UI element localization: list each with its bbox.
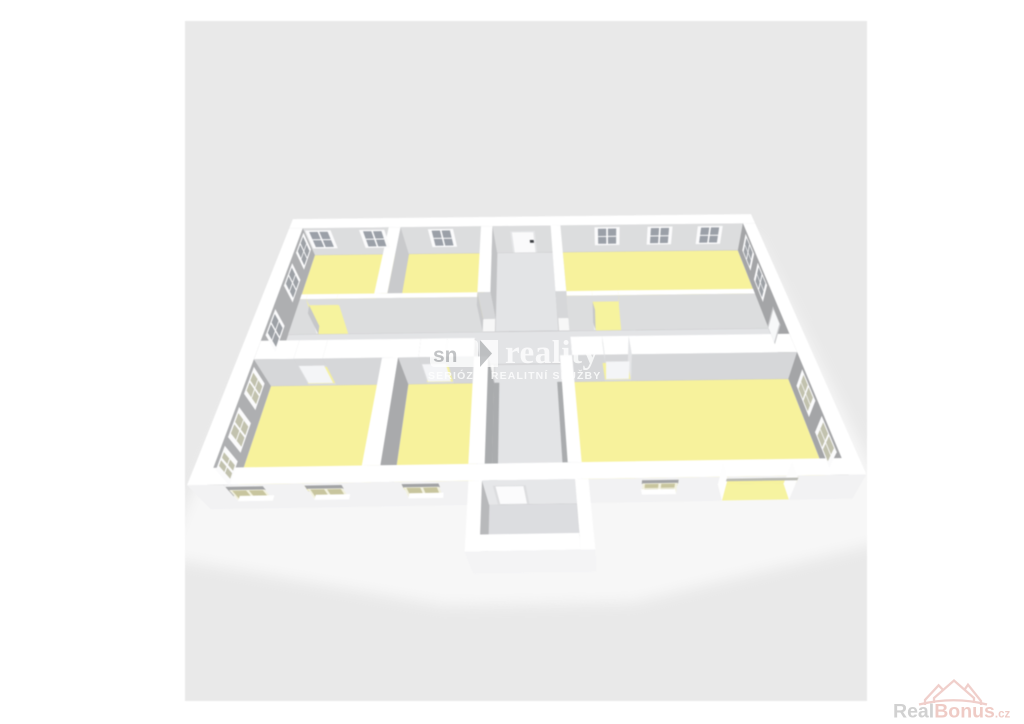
svg-text:sn: sn [433,344,458,367]
svg-text:RealBonus.cz: RealBonus.cz [893,701,1010,723]
